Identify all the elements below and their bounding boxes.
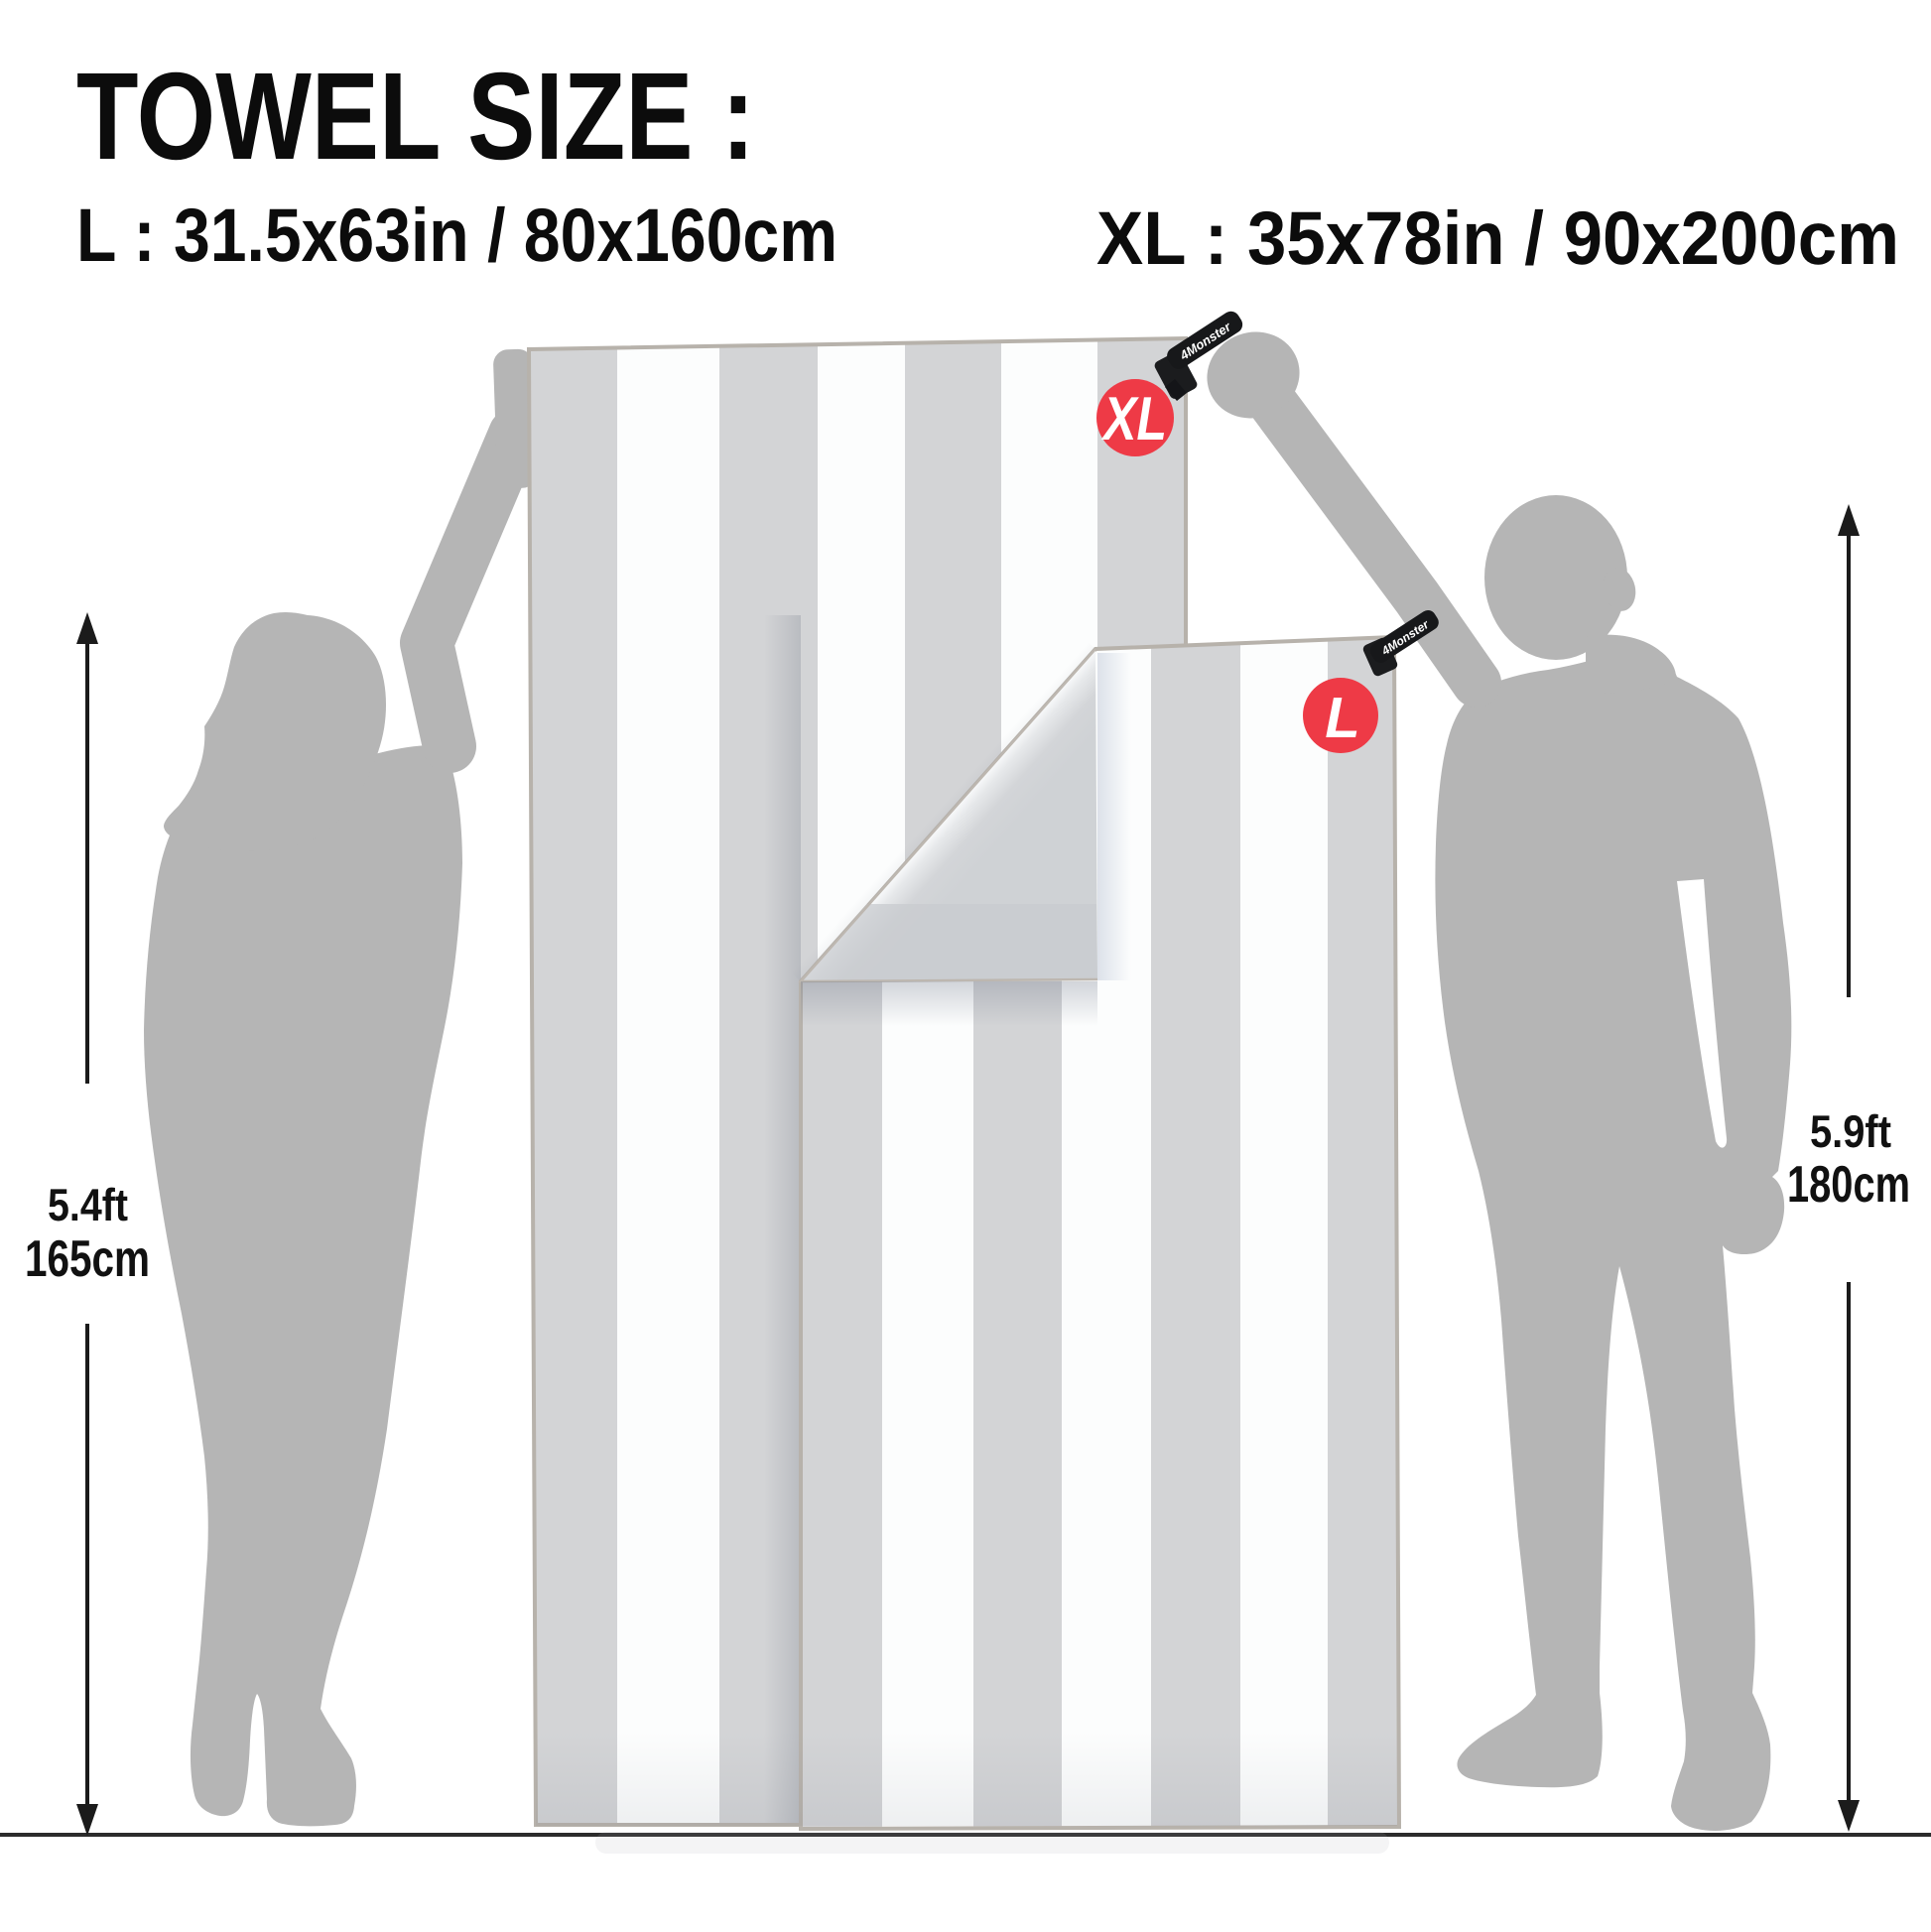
svg-text:L: L (1325, 686, 1359, 750)
svg-text:180cm: 180cm (1787, 1156, 1910, 1214)
svg-text:165cm: 165cm (25, 1230, 150, 1288)
svg-text:XL : 35x78in / 90x200cm: XL : 35x78in / 90x200cm (1096, 196, 1899, 281)
svg-text:TOWEL SIZE :: TOWEL SIZE : (76, 48, 755, 186)
svg-text:XL: XL (1101, 385, 1167, 453)
svg-text:L : 31.5x63in / 80x160cm: L : 31.5x63in / 80x160cm (76, 193, 837, 278)
svg-text:5.4ft: 5.4ft (48, 1179, 128, 1230)
svg-text:5.9ft: 5.9ft (1810, 1105, 1891, 1157)
